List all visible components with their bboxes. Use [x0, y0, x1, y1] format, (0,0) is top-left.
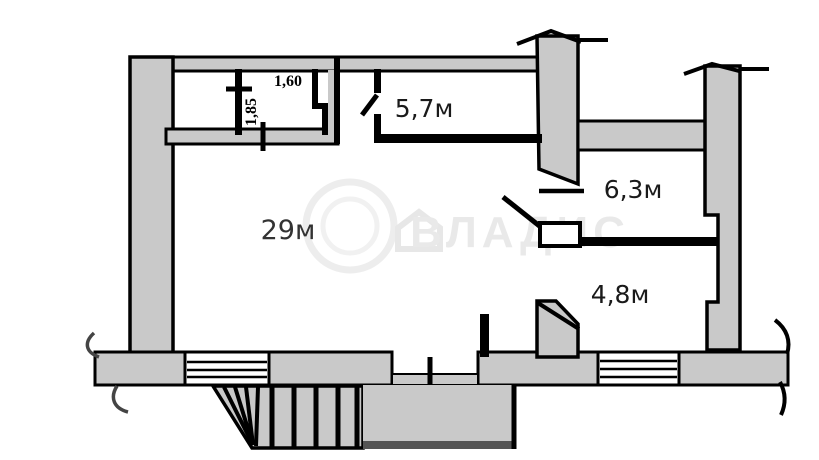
hall-door-frame — [540, 223, 580, 246]
wall-right — [705, 66, 740, 350]
closet-right-wall-upper — [312, 69, 318, 107]
wall-break-right-top-icon — [775, 320, 789, 354]
floor-plan-canvas: ВЛАДИС — [0, 0, 819, 460]
wall-bottom-seg2 — [267, 352, 392, 385]
wall-break-left-bottom-icon — [113, 386, 128, 412]
wall-bottom-seg4 — [677, 352, 788, 385]
watermark-ring-inner-icon — [323, 199, 377, 253]
kitchen-left-wall-upper — [374, 69, 381, 93]
wall-recessed-top — [578, 121, 707, 150]
room-29-label: 29м — [261, 215, 316, 246]
stair-fan-step-line — [256, 387, 258, 446]
wall-left — [130, 57, 173, 357]
room-57-label: 5,7м — [395, 94, 454, 123]
room-63-label: 6,3м — [604, 175, 663, 204]
watermark-agency-text: ВЛАДИС — [410, 208, 630, 257]
porch-landing — [363, 385, 516, 448]
closet-width-label: 1,60 — [274, 73, 302, 90]
wall-column-1 — [537, 36, 578, 184]
closet-divider-wall — [235, 69, 242, 135]
room-63-bottom-wall — [578, 237, 718, 246]
floor-plan-drawing: ВЛАДИС — [0, 0, 819, 460]
porch-bottom-edge — [363, 441, 516, 449]
window-1 — [185, 352, 269, 385]
staircase — [213, 385, 516, 449]
closet-right-wall-core — [328, 70, 335, 132]
wall-bottom-seg1 — [95, 352, 187, 385]
room-48-label: 4,8м — [591, 280, 650, 309]
labels: 29м 5,7м 6,3м 4,8м 1,60 1,85 — [243, 73, 662, 309]
wall-break-right-bottom-icon — [780, 382, 785, 415]
kitchen-bottom-wall — [374, 134, 542, 143]
entrance-threshold — [392, 374, 478, 385]
kitchen-door-leaf-icon — [362, 95, 377, 115]
closet-right-wall-lower — [322, 107, 328, 135]
closet-depth-label: 1,85 — [243, 98, 260, 126]
closet-bottom-wall — [166, 129, 338, 144]
wall-stub-lower — [537, 301, 578, 357]
watermark-ring-icon — [306, 182, 394, 270]
closet-outer-right-wall — [334, 57, 340, 144]
entrance-jamb-stub — [480, 314, 489, 357]
